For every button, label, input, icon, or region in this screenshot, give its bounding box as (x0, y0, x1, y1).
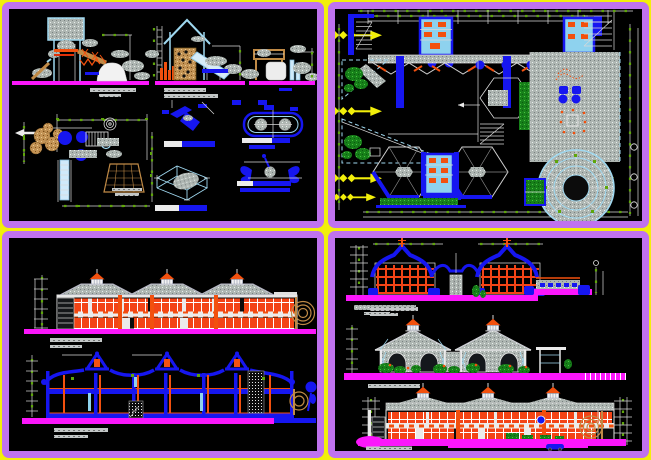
title-bar (368, 384, 420, 388)
ground-line (346, 295, 538, 301)
ground-lines (12, 81, 315, 85)
pergola (536, 347, 572, 373)
ground-line (24, 329, 316, 334)
title-bar (54, 435, 88, 438)
panel-playground-details (2, 2, 324, 228)
courtyard-upper (342, 60, 388, 99)
washroom-block-upper-right (564, 16, 612, 53)
playground-plan-view (15, 114, 152, 207)
sections-elevations-drawing (335, 238, 642, 451)
rear-elevation (356, 383, 632, 451)
panel-elevation-section (2, 231, 324, 458)
main-elevation (24, 269, 316, 348)
plaza (530, 52, 620, 164)
stairs-mid (480, 124, 504, 144)
play-tower-elevation (32, 18, 150, 97)
slide-axonometric (162, 100, 215, 147)
pavilion-elevation (344, 315, 626, 388)
panel-floor-plan (328, 2, 649, 228)
cross-section (22, 352, 317, 439)
playground-details-drawing (9, 9, 317, 221)
floor-plan-drawing (335, 9, 642, 221)
car (546, 444, 564, 451)
seesaw-plan (242, 105, 302, 149)
title-bar (370, 307, 418, 311)
title-bar (366, 447, 412, 451)
title-bar (50, 345, 82, 348)
panel-sections-elevations (328, 231, 649, 458)
title-bar (54, 428, 108, 432)
washroom-block-plaza (525, 179, 545, 205)
amphitheater (538, 150, 614, 221)
hall-section (346, 238, 603, 316)
ground-line (344, 373, 582, 380)
ground-line (22, 418, 274, 424)
planting-strip (376, 198, 466, 208)
washroom-block-lower (421, 152, 461, 200)
cad-sheet (0, 0, 651, 460)
ground-line (358, 439, 626, 446)
spring-toy-plan (237, 154, 302, 192)
title-bar (50, 338, 102, 342)
title-bar (370, 313, 398, 316)
elevation-section-drawing (9, 238, 317, 451)
sandbox-axonometric (154, 166, 210, 211)
climber-slide-elevation (145, 20, 267, 105)
